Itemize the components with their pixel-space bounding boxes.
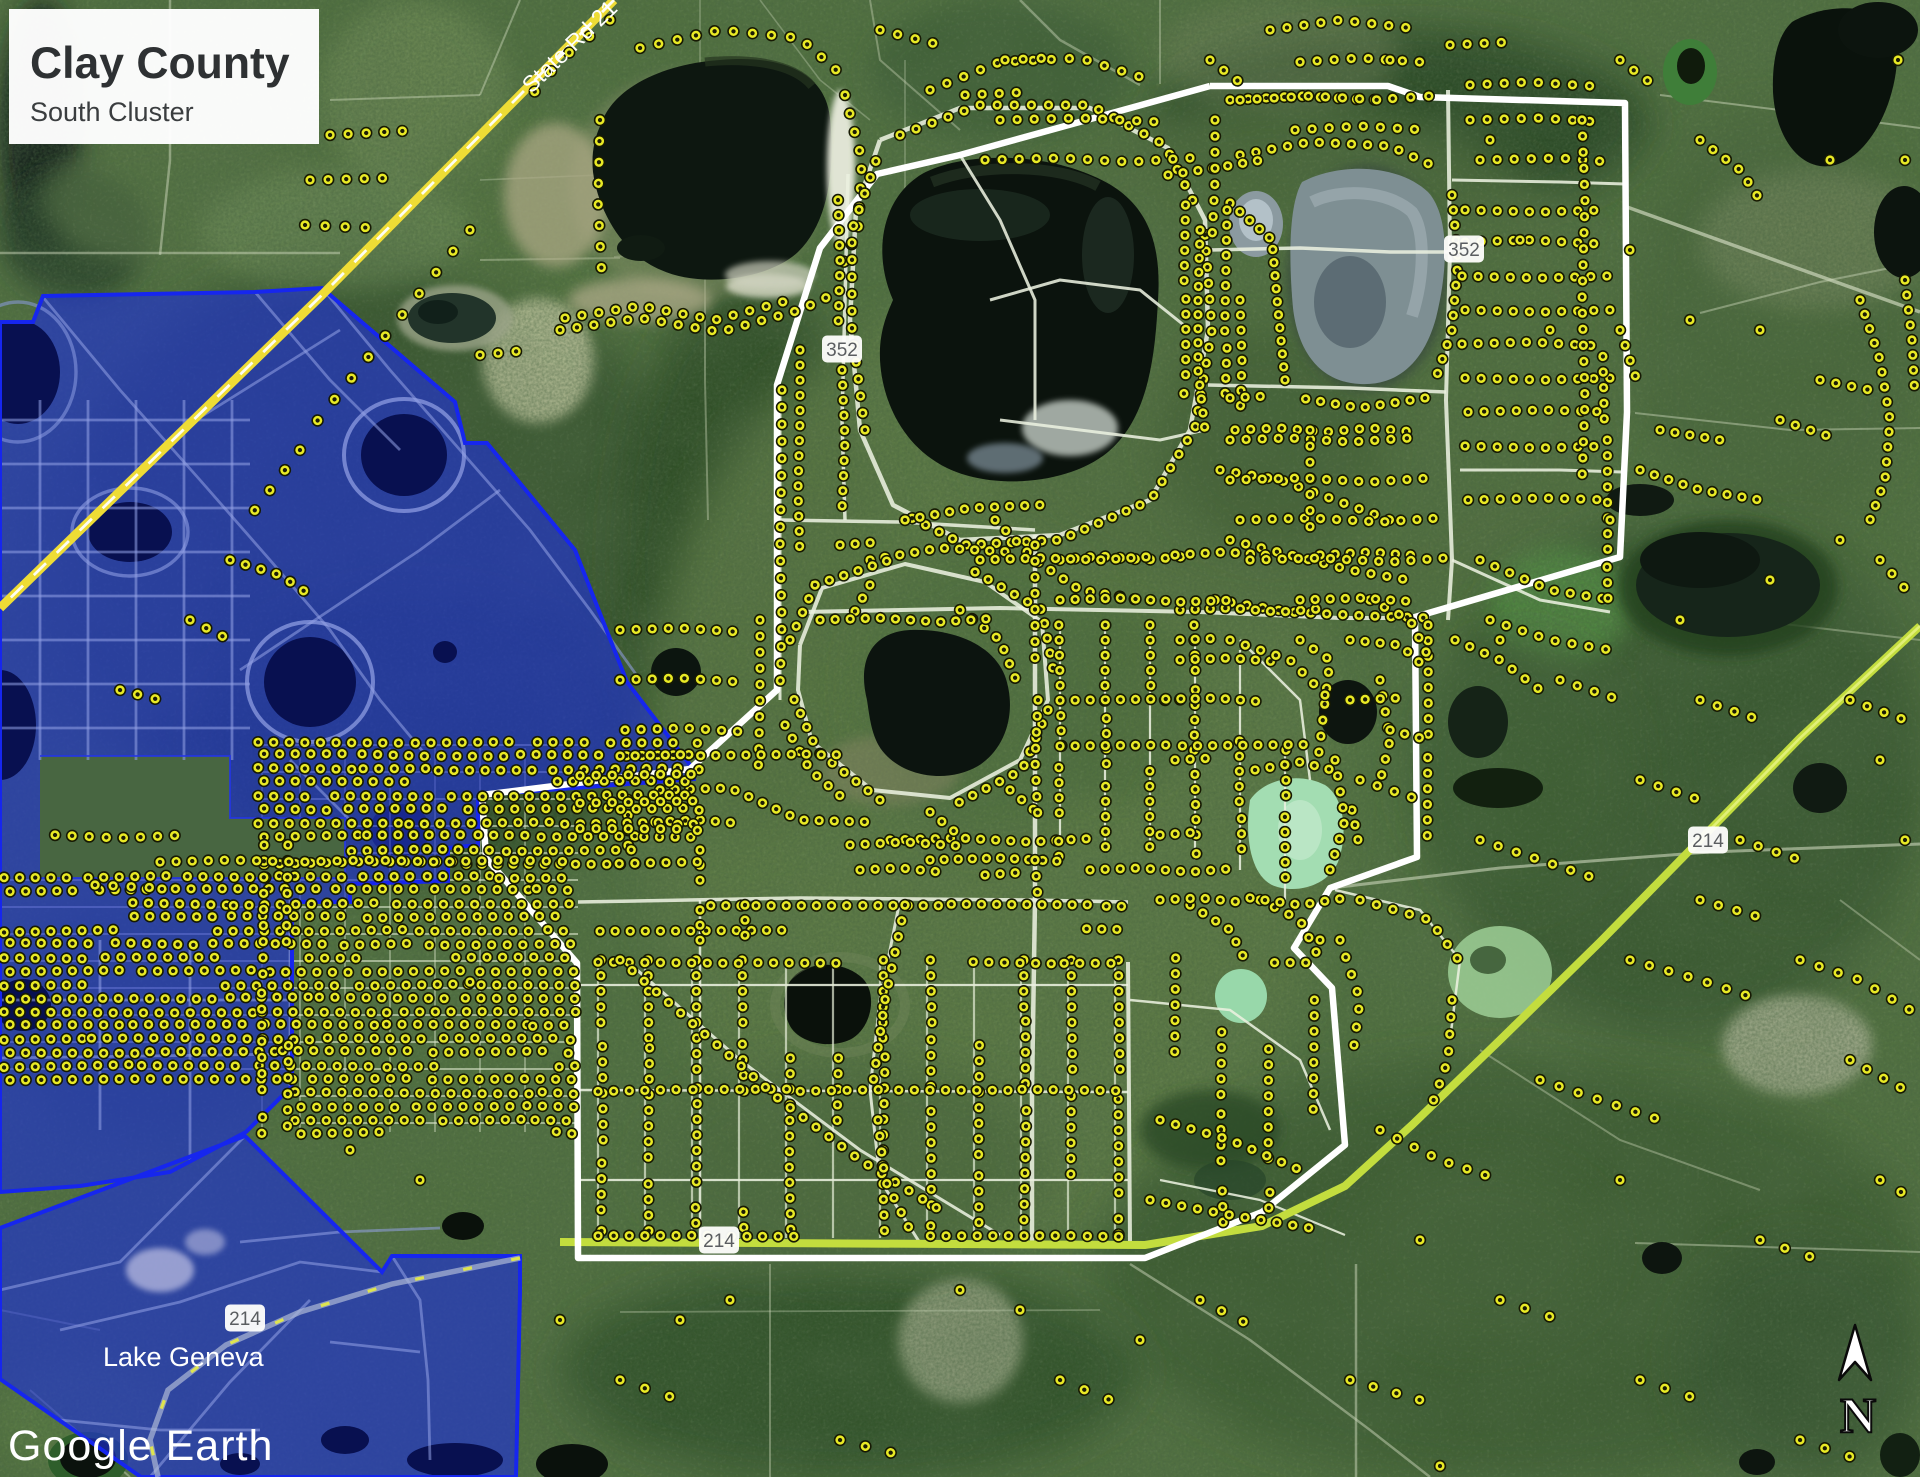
svg-text:352: 352	[826, 340, 858, 361]
svg-text:South Cluster: South Cluster	[30, 97, 194, 127]
svg-text:214: 214	[703, 1231, 735, 1252]
svg-text:352: 352	[1448, 240, 1480, 261]
svg-text:214: 214	[1692, 831, 1724, 852]
svg-text:Lake Geneva: Lake Geneva	[103, 1342, 265, 1372]
svg-text:214: 214	[229, 1309, 261, 1330]
svg-text:Google Earth: Google Earth	[8, 1422, 273, 1470]
svg-text:Clay County: Clay County	[30, 39, 290, 88]
svg-text:N: N	[1840, 1387, 1876, 1443]
